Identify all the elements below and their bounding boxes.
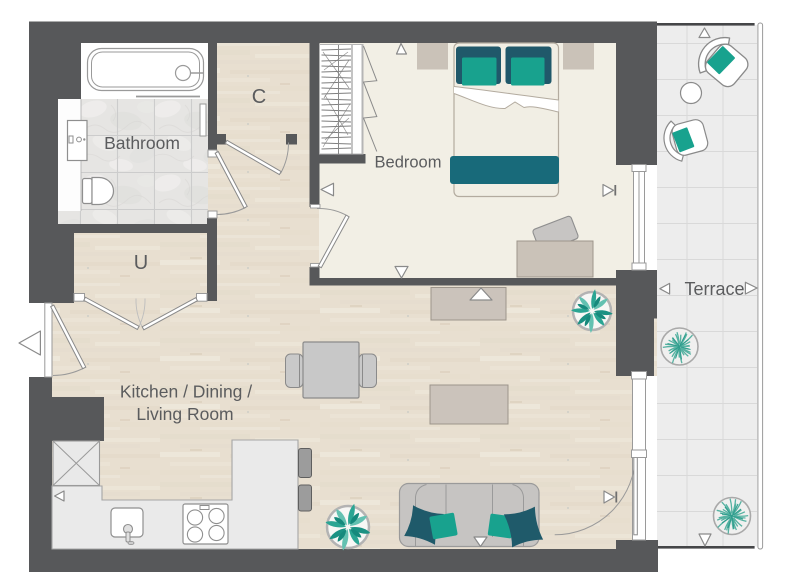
svg-text:Living Room: Living Room [136,404,233,424]
svg-text:U: U [134,252,148,274]
svg-text:Bedroom: Bedroom [375,154,442,172]
svg-text:Bathroom: Bathroom [104,133,180,153]
svg-text:Kitchen / Dining /: Kitchen / Dining / [120,382,252,402]
svg-text:Terrace: Terrace [684,279,744,299]
svg-text:C: C [252,86,266,108]
